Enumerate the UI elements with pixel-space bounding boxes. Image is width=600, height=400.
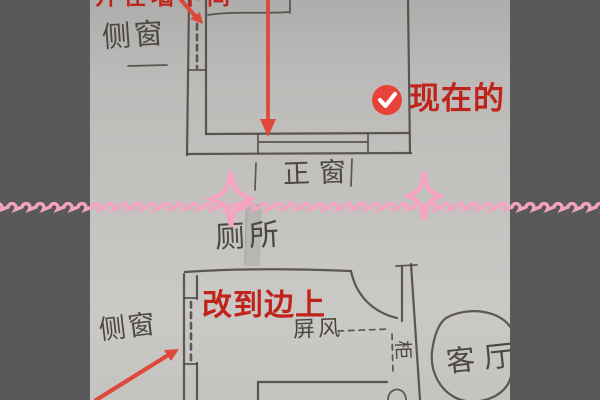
sparkle-icon (211, 171, 251, 227)
sparkle-icon (406, 172, 442, 220)
screenshot-stage: 开在墙中间 侧窗 现在的 正窗 厕所 改到边上 侧窗 屏风 柜 客厅 (0, 0, 600, 400)
pink-decoration-band (0, 0, 600, 400)
curly-loop-line (0, 204, 600, 210)
